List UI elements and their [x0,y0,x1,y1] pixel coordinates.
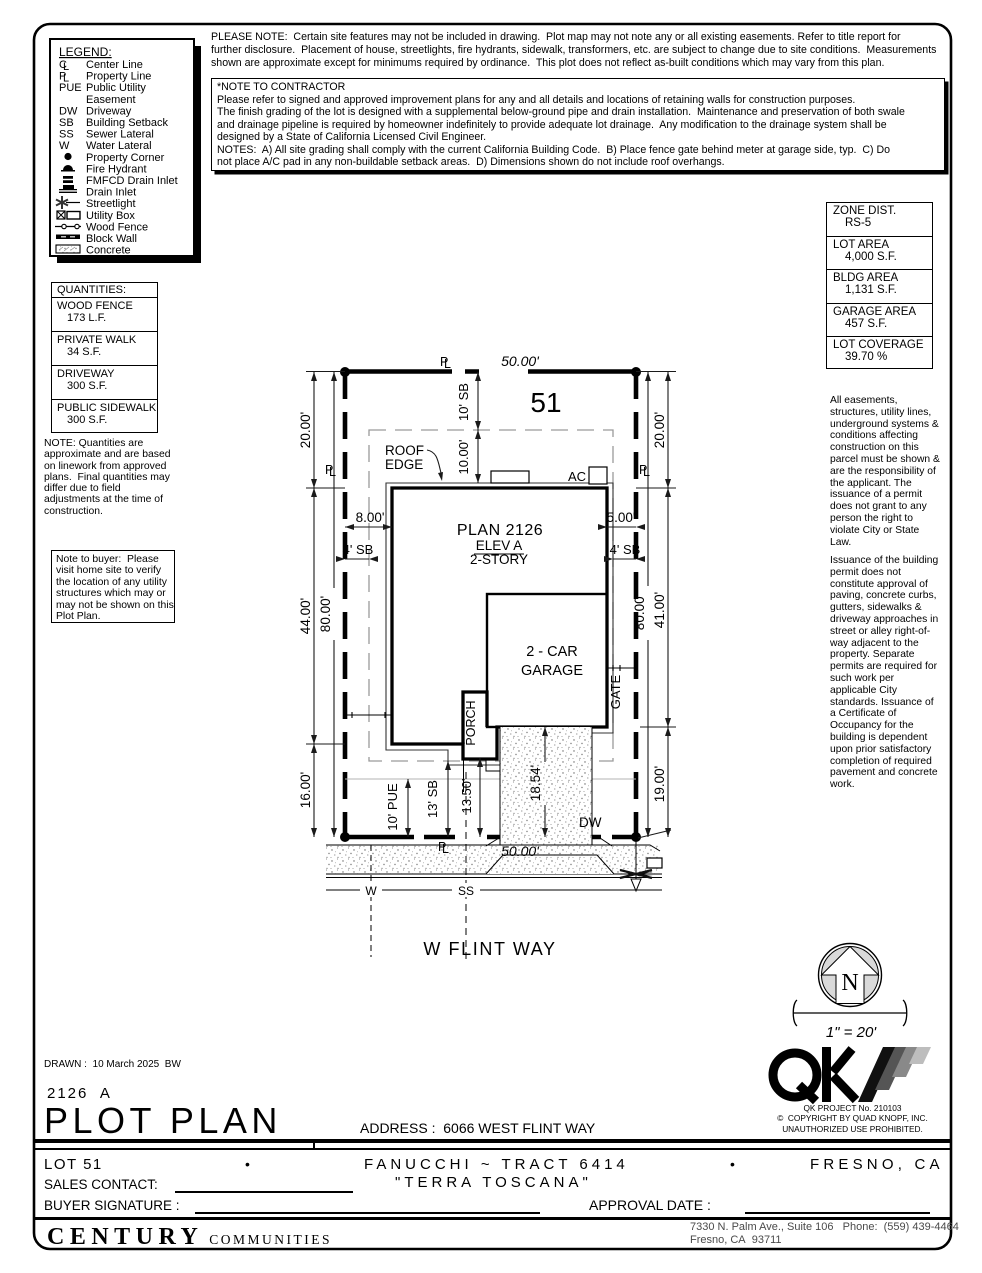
svg-text:2-STORY: 2-STORY [470,552,528,567]
svg-text:4' SB: 4' SB [343,542,374,557]
svg-text:5.00': 5.00' [607,510,636,525]
svg-text:PORCH: PORCH [464,700,478,745]
svg-text:51: 51 [530,387,561,418]
svg-text:18.54': 18.54' [528,765,543,801]
svg-text:50.00': 50.00' [501,843,540,859]
svg-text:Streetlight: Streetlight [86,198,136,210]
svg-text:SB: SB [59,117,74,129]
svg-text:L: L [329,465,336,479]
svg-text:20.00': 20.00' [652,412,667,448]
svg-text:L: L [442,842,449,856]
svg-text:W: W [365,884,377,898]
svg-text:2 - CAR: 2 - CAR [526,644,578,660]
svg-text:10' PUE: 10' PUE [385,783,400,831]
svg-text:50.00': 50.00' [501,353,540,369]
svg-text:20.00': 20.00' [298,412,313,448]
svg-text:Block Wall: Block Wall [86,233,137,245]
svg-text:Water Lateral: Water Lateral [86,140,152,152]
svg-text:ELEV A: ELEV A [476,538,523,553]
svg-text:PLAN 2126: PLAN 2126 [457,522,543,539]
svg-text:1" = 20': 1" = 20' [826,1024,877,1041]
svg-text:Sewer Lateral: Sewer Lateral [86,129,154,141]
svg-text:PUE: PUE [59,82,82,94]
svg-text:ROOF: ROOF [385,443,424,458]
svg-text:Fire Hydrant: Fire Hydrant [86,163,147,175]
svg-text:Wood Fence: Wood Fence [86,221,148,233]
svg-text:DW: DW [59,105,78,117]
svg-text:Driveway: Driveway [86,105,132,117]
svg-text:10.00': 10.00' [456,439,471,474]
svg-text:EDGE: EDGE [385,457,423,472]
svg-text:80.00': 80.00' [632,594,647,630]
svg-text:GARAGE: GARAGE [521,663,583,679]
svg-text:13' SB: 13' SB [425,780,440,818]
svg-text:Center Line: Center Line [86,59,143,71]
svg-text:8.00': 8.00' [356,510,385,525]
svg-text:GATE: GATE [608,674,623,709]
svg-text:Utility Box: Utility Box [86,210,135,222]
svg-text:16.00': 16.00' [298,772,313,808]
svg-text:19.00': 19.00' [652,766,667,802]
svg-text:Concrete: Concrete [86,245,131,257]
svg-text:W: W [59,140,70,152]
svg-text:Property Corner: Property Corner [86,152,165,164]
svg-text:4' SB: 4' SB [610,542,641,557]
svg-text:Building Setback: Building Setback [86,117,168,129]
svg-text:Easement: Easement [86,94,136,106]
svg-text:44.00': 44.00' [298,598,313,634]
svg-text:SS: SS [458,884,474,898]
svg-text:Property Line: Property Line [86,71,151,83]
svg-text:13.50': 13.50' [459,778,474,813]
svg-text:W FLINT WAY: W FLINT WAY [423,939,556,959]
svg-text:80.00': 80.00' [318,596,333,632]
svg-text:LEGEND:: LEGEND: [59,45,112,59]
svg-text:L: L [444,357,451,371]
svg-text:41.00': 41.00' [652,592,667,628]
svg-text:AC: AC [568,469,586,484]
svg-text:SS: SS [59,129,74,141]
svg-text:L: L [643,465,650,479]
svg-text:10' SB: 10' SB [456,383,471,421]
svg-text:Drain Inlet: Drain Inlet [86,187,136,199]
svg-text:Public Utility: Public Utility [86,82,146,94]
svg-text:N: N [841,970,858,996]
svg-text:DW: DW [579,815,602,830]
svg-text:FMFCD Drain Inlet: FMFCD Drain Inlet [86,175,178,187]
